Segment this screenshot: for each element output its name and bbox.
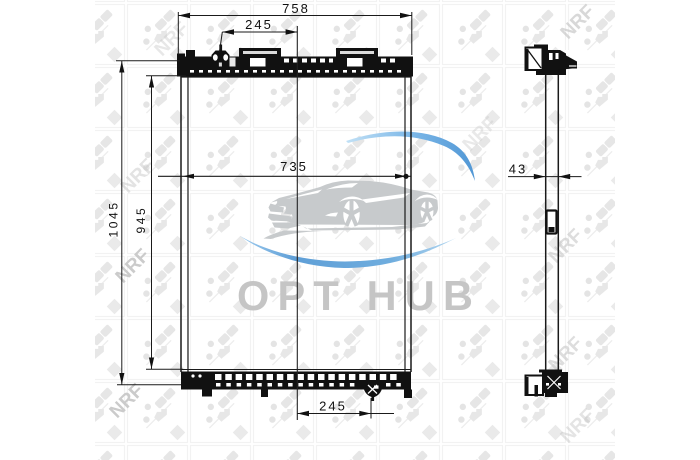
svg-text:245: 245 — [245, 17, 273, 32]
svg-text:758: 758 — [282, 1, 310, 16]
svg-text:43: 43 — [509, 162, 527, 177]
svg-text:OPT HUB: OPT HUB — [237, 272, 481, 319]
svg-text:735: 735 — [280, 159, 308, 174]
svg-text:1045: 1045 — [107, 200, 121, 237]
svg-text:245: 245 — [319, 399, 347, 414]
svg-text:945: 945 — [134, 206, 148, 234]
